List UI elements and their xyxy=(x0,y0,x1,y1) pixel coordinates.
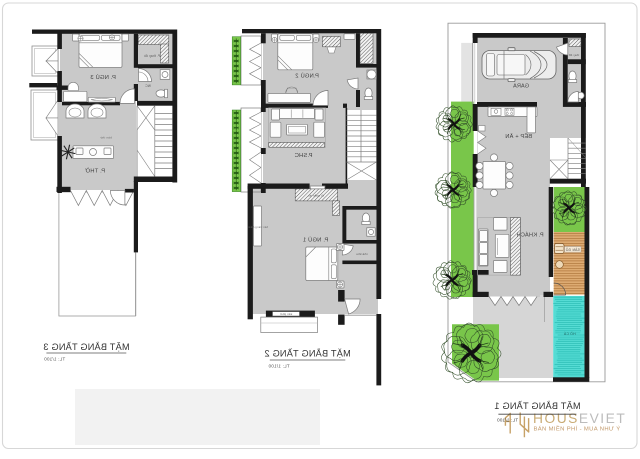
svg-text:TL: 1/100: TL: 1/100 xyxy=(497,418,518,423)
svg-text:P.SHC: P.SHC xyxy=(295,153,313,159)
svg-text:P. thay đồ: P. thay đồ xyxy=(144,54,160,58)
svg-text:BÁN MIỀN PHÍ - MUA NHƯ Ý: BÁN MIỀN PHÍ - MUA NHƯ Ý xyxy=(534,426,621,433)
svg-text:P.NGỦ 2: P.NGỦ 2 xyxy=(295,73,319,80)
svg-text:WC: WC xyxy=(145,84,151,88)
svg-text:TL: 1/100: TL: 1/100 xyxy=(268,363,289,368)
svg-text:HỒ CÁ: HỒ CÁ xyxy=(563,331,575,336)
svg-text:bàn thờ: bàn thờ xyxy=(100,136,112,140)
svg-text:MẶT BẰNG TẦNG 3: MẶT BẰNG TẦNG 3 xyxy=(43,342,129,352)
svg-text:TL: 1/100: TL: 1/100 xyxy=(44,357,65,362)
svg-text:MẶT BẰNG TẦNG 2: MẶT BẰNG TẦNG 2 xyxy=(264,349,350,359)
svg-text:GARA: GARA xyxy=(513,84,529,90)
svg-text:MẶT BẰNG TẦNG 1: MẶT BẰNG TẦNG 1 xyxy=(494,401,580,411)
svg-text:tủ quần áo: tủ quần áo xyxy=(308,194,324,198)
svg-text:P. NGỦ 1: P. NGỦ 1 xyxy=(303,237,329,244)
svg-text:thay đồ: thay đồ xyxy=(568,53,579,57)
svg-text:nhà kho: nhà kho xyxy=(356,252,368,256)
svg-text:HOUSEVIET: HOUSEVIET xyxy=(533,411,626,426)
svg-text:P. THỜ: P. THỜ xyxy=(85,168,105,175)
svg-text:P. KHÁCH: P. KHÁCH xyxy=(516,232,543,239)
svg-text:bàn trang điểm: bàn trang điểm xyxy=(248,225,268,229)
svg-text:sân phơi: sân phơi xyxy=(280,312,293,316)
svg-text:P. NGỦ 3: P. NGỦ 3 xyxy=(90,74,116,81)
svg-text:BẾP + ĂN: BẾP + ĂN xyxy=(505,133,532,140)
svg-text:SÂN GỖ: SÂN GỖ xyxy=(565,247,580,252)
